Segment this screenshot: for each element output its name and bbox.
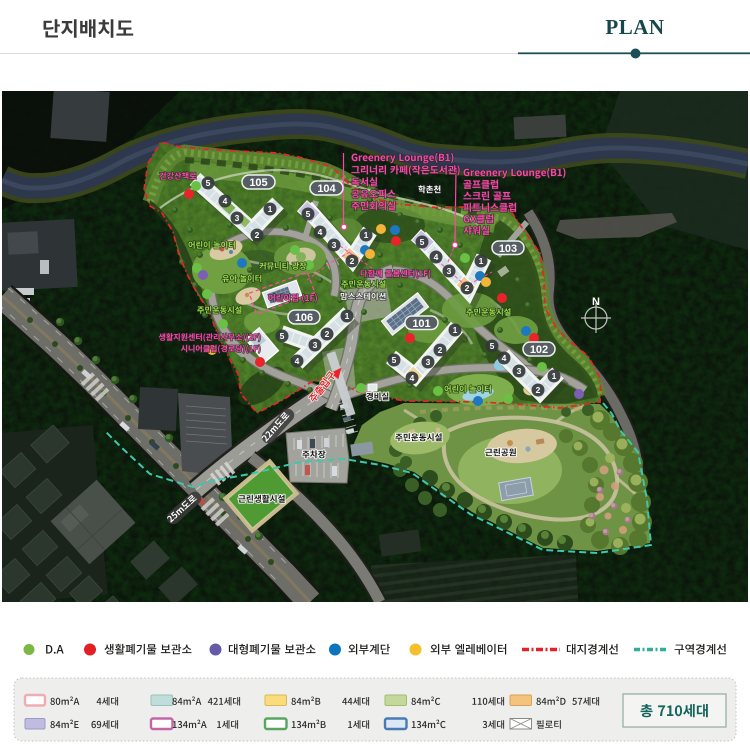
svg-text:3: 3 [447, 266, 452, 276]
svg-text:1: 1 [479, 256, 484, 266]
svg-text:5: 5 [420, 237, 425, 247]
svg-text:2: 2 [255, 230, 260, 240]
svg-text:5: 5 [306, 209, 311, 219]
svg-text:4: 4 [502, 353, 507, 363]
svg-text:106: 106 [295, 312, 313, 324]
svg-text:4: 4 [410, 373, 415, 383]
svg-text:3: 3 [235, 213, 240, 223]
svg-text:3: 3 [517, 366, 522, 376]
svg-text:3: 3 [313, 340, 318, 350]
svg-text:4: 4 [318, 227, 323, 237]
svg-text:2: 2 [325, 329, 330, 339]
svg-text:2: 2 [438, 345, 443, 355]
svg-text:104: 104 [317, 183, 336, 195]
svg-text:PLAN: PLAN [605, 15, 664, 39]
svg-text:5: 5 [206, 178, 211, 188]
svg-text:5: 5 [392, 355, 397, 365]
svg-text:1: 1 [453, 325, 458, 335]
svg-text:1: 1 [552, 371, 557, 381]
svg-text:101: 101 [412, 318, 430, 330]
svg-text:3: 3 [426, 357, 431, 367]
svg-text:1: 1 [345, 311, 350, 321]
svg-text:1: 1 [268, 204, 273, 214]
svg-text:N: N [592, 296, 600, 308]
svg-text:1: 1 [364, 230, 369, 240]
svg-text:2: 2 [465, 283, 470, 293]
svg-text:3: 3 [332, 240, 337, 250]
svg-text:2: 2 [350, 256, 355, 266]
svg-text:102: 102 [530, 344, 548, 356]
svg-text:5: 5 [280, 331, 285, 341]
svg-text:4: 4 [434, 252, 439, 262]
svg-text:5: 5 [490, 341, 495, 351]
svg-text:105: 105 [249, 177, 267, 189]
svg-text:2: 2 [536, 385, 541, 395]
svg-text:4: 4 [295, 356, 300, 366]
svg-text:103: 103 [499, 243, 517, 255]
svg-text:4: 4 [223, 196, 228, 206]
